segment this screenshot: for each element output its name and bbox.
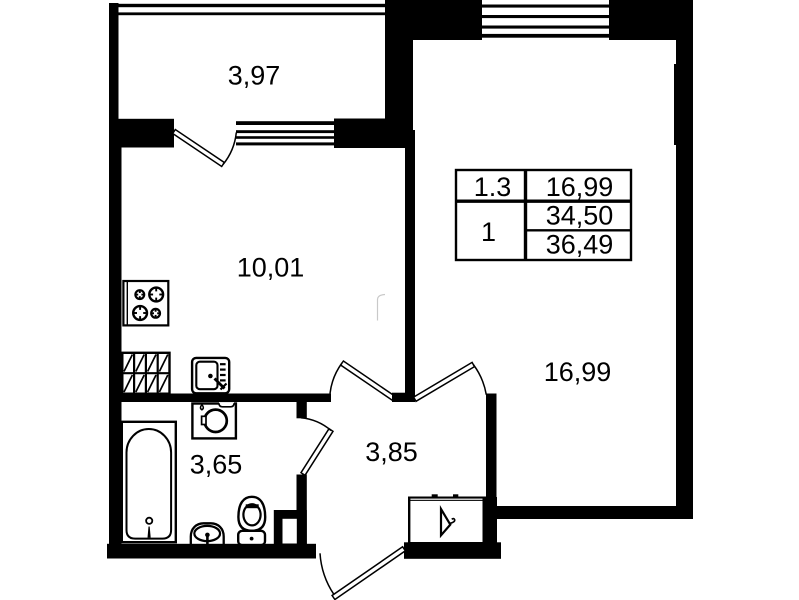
svg-text:10,01: 10,01 bbox=[237, 253, 305, 283]
svg-text:16,99: 16,99 bbox=[544, 357, 612, 387]
svg-text:34,50: 34,50 bbox=[546, 200, 614, 230]
svg-text:16,99: 16,99 bbox=[546, 172, 614, 202]
svg-text:36,49: 36,49 bbox=[546, 230, 614, 260]
svg-text:3,65: 3,65 bbox=[190, 450, 243, 480]
svg-text:3,85: 3,85 bbox=[365, 437, 418, 467]
svg-text:3,97: 3,97 bbox=[228, 61, 281, 91]
svg-text:1: 1 bbox=[481, 217, 496, 247]
svg-text:1.3: 1.3 bbox=[474, 172, 512, 202]
